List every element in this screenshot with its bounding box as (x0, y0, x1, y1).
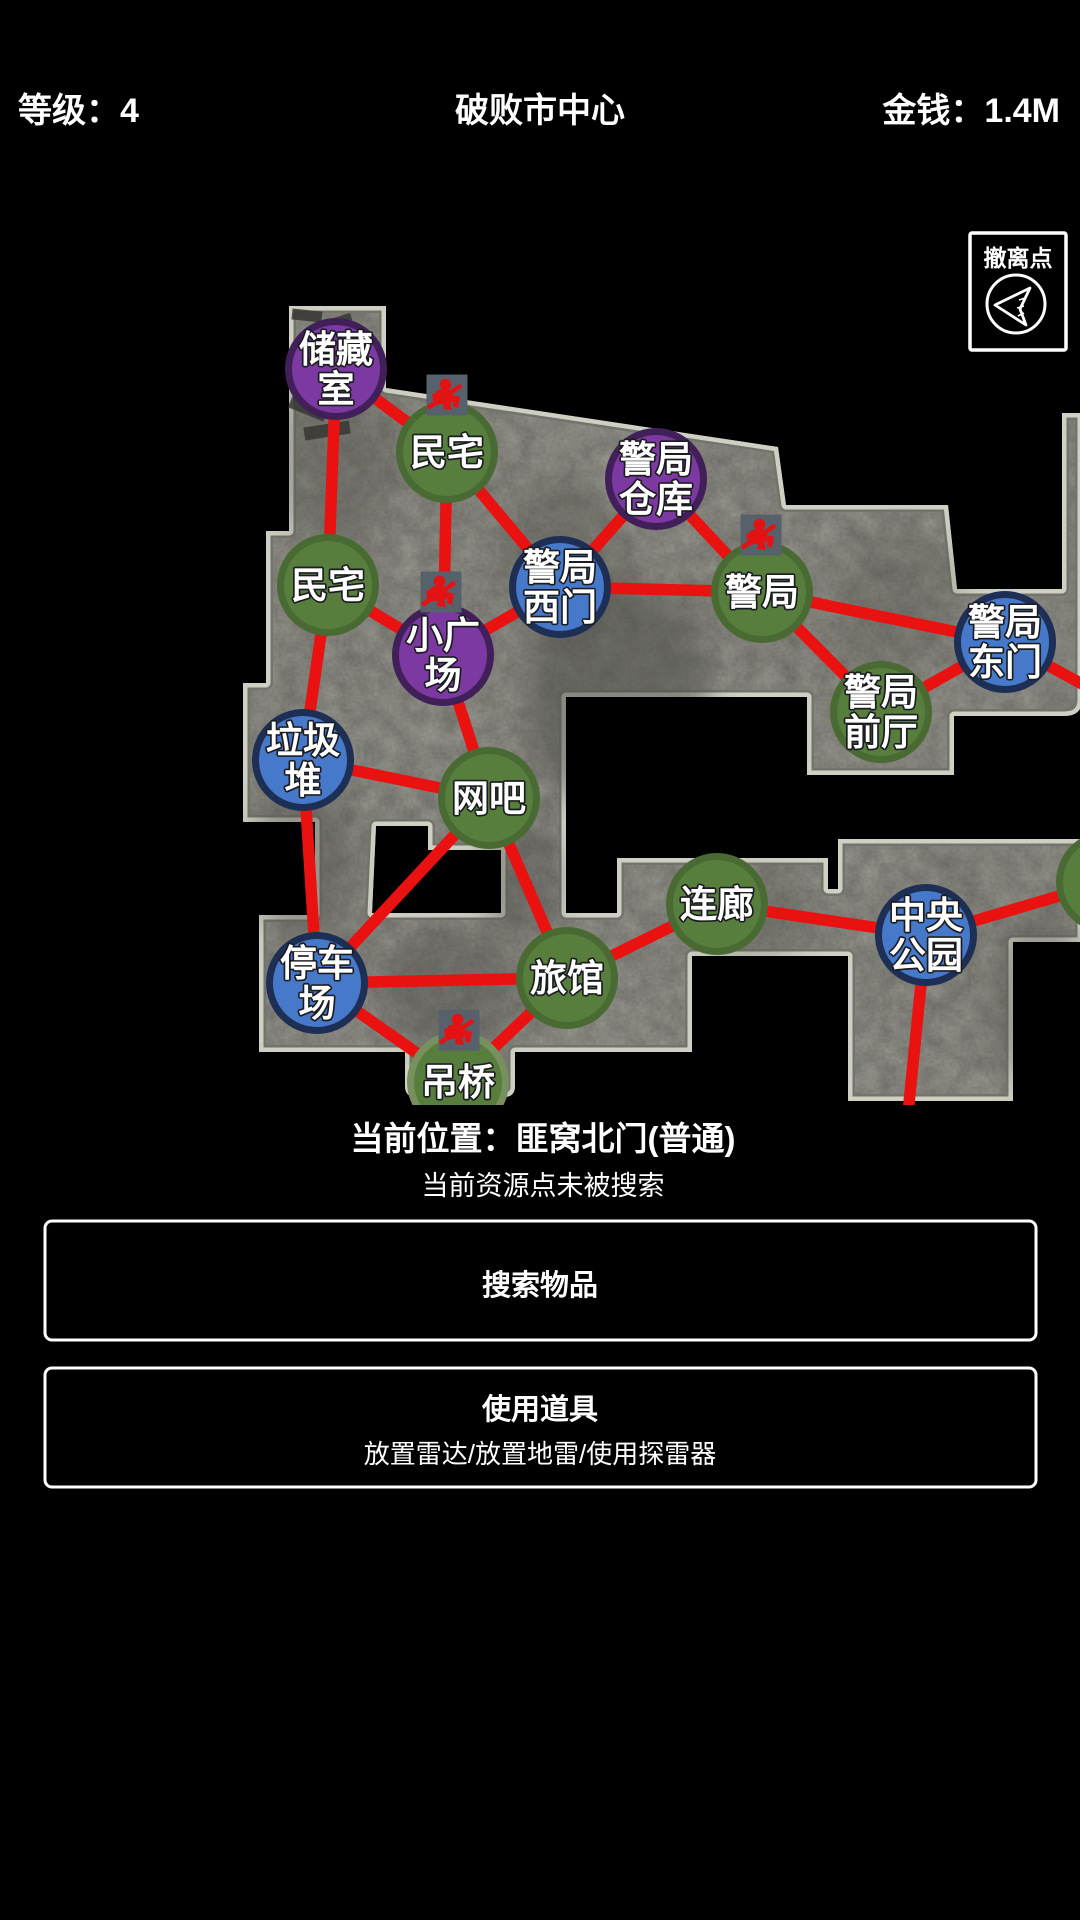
svg-text:等级：4: 等级：4 (18, 92, 139, 130)
svg-text:撤离点: 撤离点 (984, 245, 1053, 271)
svg-text:连廊: 连廊 (680, 884, 754, 925)
svg-text:当前位置：匪窝北门(普通): 当前位置：匪窝北门(普通) (351, 1120, 736, 1157)
svg-text:仓库: 仓库 (619, 479, 693, 520)
svg-text:民宅: 民宅 (410, 431, 484, 473)
svg-text:堆: 堆 (285, 760, 322, 801)
svg-text:当前资源点未被搜索: 当前资源点未被搜索 (422, 1171, 665, 1201)
svg-text:室: 室 (318, 368, 355, 410)
svg-text:网吧: 网吧 (452, 778, 526, 819)
svg-text:小广: 小广 (406, 615, 480, 656)
svg-text:中央: 中央 (889, 895, 964, 936)
svg-text:警局: 警局 (523, 547, 597, 588)
svg-text:警局: 警局 (725, 572, 799, 613)
svg-text:公园: 公园 (889, 935, 963, 976)
svg-text:警局: 警局 (844, 672, 918, 713)
svg-text:吊桥: 吊桥 (421, 1062, 495, 1103)
svg-text:旅馆: 旅馆 (530, 958, 604, 999)
svg-text:警局: 警局 (968, 602, 1042, 643)
svg-text:民宅: 民宅 (291, 564, 365, 606)
svg-text:场: 场 (299, 983, 336, 1024)
svg-text:垃圾: 垃圾 (266, 720, 340, 761)
svg-text:使用道具: 使用道具 (481, 1393, 598, 1426)
svg-text:搜索物品: 搜索物品 (482, 1269, 598, 1302)
svg-text:金钱：1.4M: 金钱：1.4M (881, 91, 1060, 130)
svg-text:停车: 停车 (280, 943, 354, 984)
svg-text:场: 场 (425, 655, 462, 696)
svg-text:储藏: 储藏 (299, 329, 373, 370)
svg-text:前厅: 前厅 (844, 712, 918, 753)
svg-text:破败市中心: 破败市中心 (455, 91, 625, 130)
svg-text:放置雷达/放置地雷/使用探雷器: 放置雷达/放置地雷/使用探雷器 (364, 1439, 716, 1469)
svg-text:东门: 东门 (968, 642, 1042, 683)
svg-text:西门: 西门 (523, 587, 597, 628)
svg-text:警局: 警局 (619, 439, 693, 480)
